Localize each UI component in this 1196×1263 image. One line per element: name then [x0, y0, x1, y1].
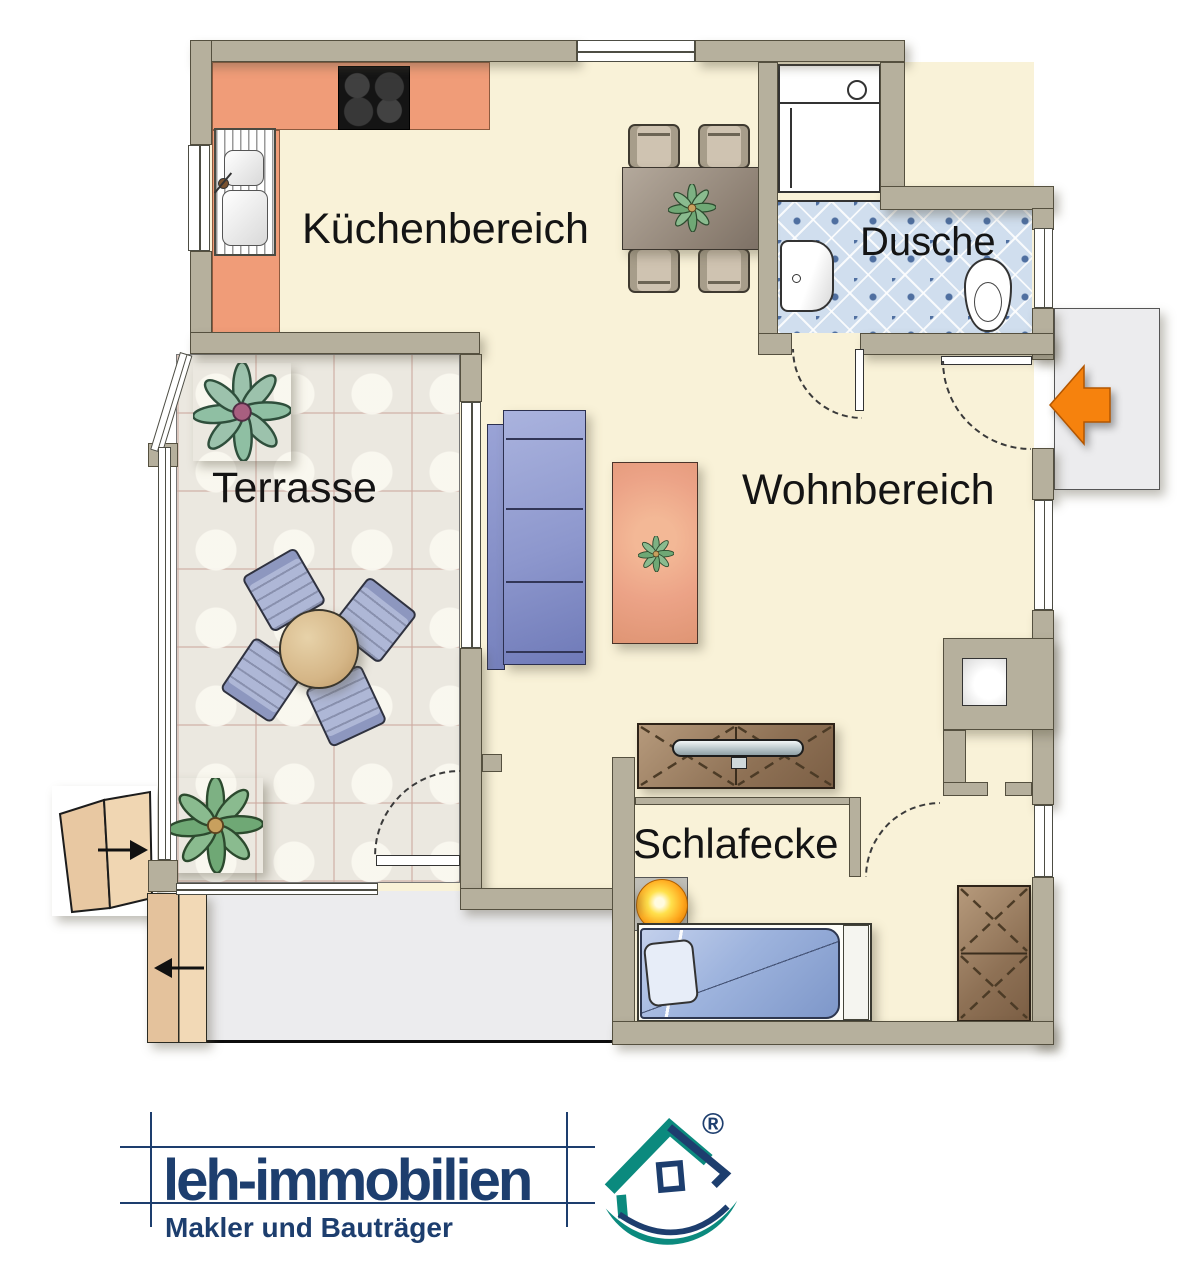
window: [1034, 500, 1053, 610]
wall: [943, 730, 966, 788]
wall: [1032, 208, 1054, 230]
kitchen-sink-basin-small: [224, 150, 264, 186]
wall: [190, 332, 480, 354]
shower-stall: [778, 64, 881, 193]
logo-frame-line: [566, 1112, 568, 1227]
floorplan-canvas: Küchenbereich Dusche Terrasse Wohnbereic…: [0, 0, 1196, 1263]
window: [461, 402, 481, 648]
shower-stall-door-line: [790, 108, 792, 188]
terrace-plant-icon: [168, 778, 263, 873]
wardrobe-x-pattern: [959, 887, 1029, 1020]
wall: [1032, 448, 1054, 500]
kitchen-label: Küchenbereich: [302, 205, 589, 254]
sofa: [503, 410, 586, 665]
window: [188, 145, 210, 251]
wall: [695, 40, 905, 62]
wall: [880, 62, 905, 193]
wall: [612, 757, 635, 1023]
terrace-door: [376, 855, 460, 866]
living-rug-plant-icon: [638, 536, 674, 572]
wall: [460, 648, 482, 890]
brand-name: leh-immobilien: [163, 1147, 530, 1214]
wall: [190, 40, 577, 62]
terrace-glazing: [158, 447, 171, 860]
wall: [1005, 782, 1032, 796]
entry-arrow-icon: [1048, 360, 1112, 450]
wall: [880, 186, 1054, 210]
window: [577, 40, 695, 62]
logo-frame-line: [150, 1112, 152, 1227]
living-label: Wohnbereich: [742, 466, 995, 515]
wall: [758, 62, 778, 355]
wall: [460, 888, 635, 910]
bed-pillow: [643, 939, 699, 1008]
registered-mark: ®: [702, 1108, 724, 1142]
wall: [482, 754, 502, 772]
wall: [758, 333, 792, 355]
kitchen-sink-basin-large: [222, 190, 268, 246]
terrace-round-table: [279, 609, 359, 689]
bed-headboard: [843, 925, 869, 1020]
wall: [943, 782, 988, 796]
wall: [460, 354, 482, 402]
dining-chair: [628, 124, 680, 169]
wall: [860, 333, 1054, 355]
kitchen-sink-unit: [214, 128, 276, 256]
terrace-glazing: [176, 883, 378, 895]
terrace-corner-pier: [148, 860, 178, 892]
shower-drain-icon: [847, 80, 867, 100]
shower-label: Dusche: [860, 220, 996, 265]
dining-chair: [698, 248, 750, 293]
terrace-label: Terrasse: [212, 464, 377, 513]
stairs-up-arrow-icon: [96, 838, 150, 862]
brand-tagline: Makler und Bauträger: [165, 1212, 453, 1244]
wall: [612, 1021, 1054, 1045]
stairs-down-arrow-icon: [152, 956, 206, 980]
window: [1034, 805, 1053, 877]
stove-cooktop: [338, 66, 410, 130]
dining-chair: [698, 124, 750, 169]
dining-table-plant-icon: [668, 184, 716, 232]
bathroom-sink: [780, 240, 834, 312]
dining-chair: [628, 248, 680, 293]
clothes-rail: [672, 739, 804, 757]
clothes-rail-bracket: [731, 757, 747, 769]
wall: [635, 797, 857, 805]
wall: [1032, 877, 1054, 1045]
outside-path: [205, 891, 614, 1043]
wall: [190, 40, 212, 145]
utility-shaft: [962, 658, 1007, 706]
wall: [849, 797, 861, 877]
shower-stall-divider: [780, 102, 879, 104]
bathroom-sink-drain: [792, 274, 801, 283]
sleeping-label: Schlafecke: [633, 820, 838, 868]
window: [1034, 228, 1053, 308]
terrace-plant-icon: [193, 363, 291, 461]
wardrobe: [957, 885, 1031, 1022]
